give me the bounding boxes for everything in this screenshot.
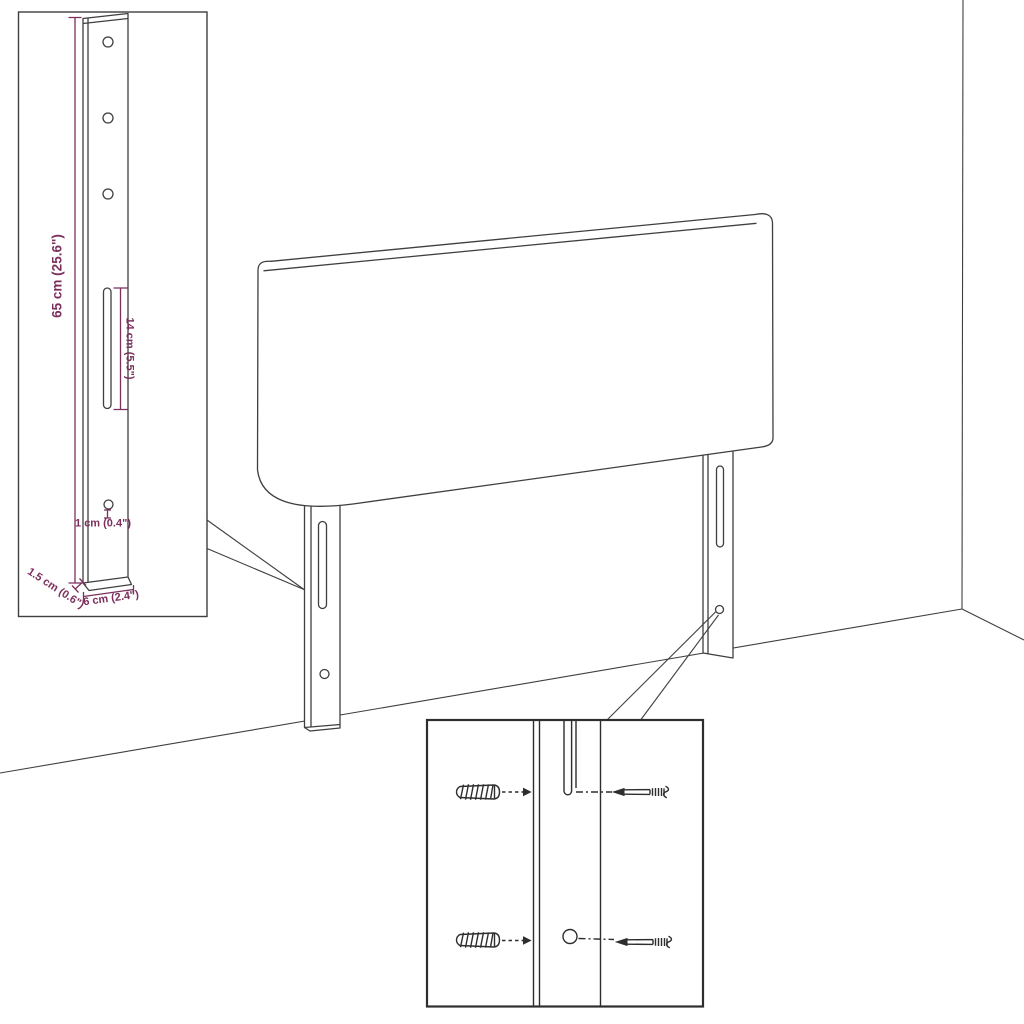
dimension-height-label: 65 cm (25.6"): [50, 234, 65, 318]
mounting-leg-left: [305, 494, 341, 732]
hardware-inset-frame: [427, 720, 703, 1007]
mounting-leg-right: [703, 443, 733, 659]
bracket-body: [83, 14, 128, 584]
diagram-svg: 65 cm (25.6") 14 cm (5.5") 1 cm (0.4") 1…: [0, 0, 1024, 1024]
bracket-detail-inset: 65 cm (25.6") 14 cm (5.5") 1 cm (0.4") 1…: [19, 12, 208, 617]
dimension-hole-label: 1 cm (0.4"): [75, 518, 131, 530]
leg-left-body: [305, 494, 341, 728]
screw-leader-line-bottom: [579, 939, 615, 940]
hardware-detail-inset: [427, 720, 703, 1007]
headboard-assembly-diagram: 65 cm (25.6") 14 cm (5.5") 1 cm (0.4") 1…: [0, 0, 1024, 1024]
dimension-slot-label: 14 cm (5.5"): [124, 317, 136, 379]
